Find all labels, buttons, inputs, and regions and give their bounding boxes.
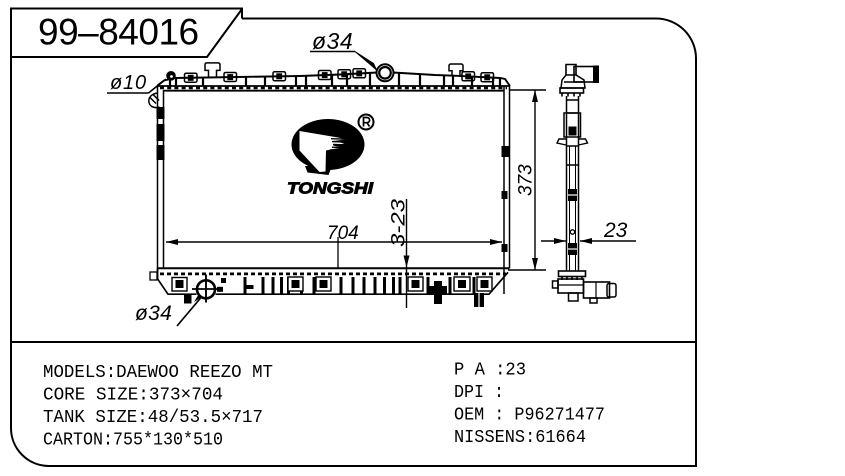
svg-text:CARTON:755*130*510: CARTON:755*130*510 [43,431,223,451]
svg-text:OEM : P96271477: OEM : P96271477 [454,406,605,426]
svg-text:23: 23 [603,219,628,242]
svg-text:MODELS:DAEWOO REEZO MT: MODELS:DAEWOO REEZO MT [43,363,273,383]
svg-text:ø34: ø34 [135,302,172,325]
svg-text:DPI :: DPI : [454,383,504,403]
svg-text:ø34: ø34 [312,28,353,54]
svg-text:99–84016: 99–84016 [38,12,199,53]
svg-text:704: 704 [327,223,359,244]
svg-text:TONGSHI: TONGSHI [287,181,374,198]
svg-text:P A :23: P A :23 [454,361,526,381]
svg-text:CORE SIZE:373×704: CORE SIZE:373×704 [43,386,223,406]
svg-text:TANK SIZE:48/53.5×717: TANK SIZE:48/53.5×717 [43,408,263,428]
svg-text:ø10: ø10 [110,72,147,94]
svg-text:373: 373 [516,164,537,196]
svg-text:3-23: 3-23 [389,198,410,247]
svg-text:NISSENS:61664: NISSENS:61664 [454,428,586,448]
